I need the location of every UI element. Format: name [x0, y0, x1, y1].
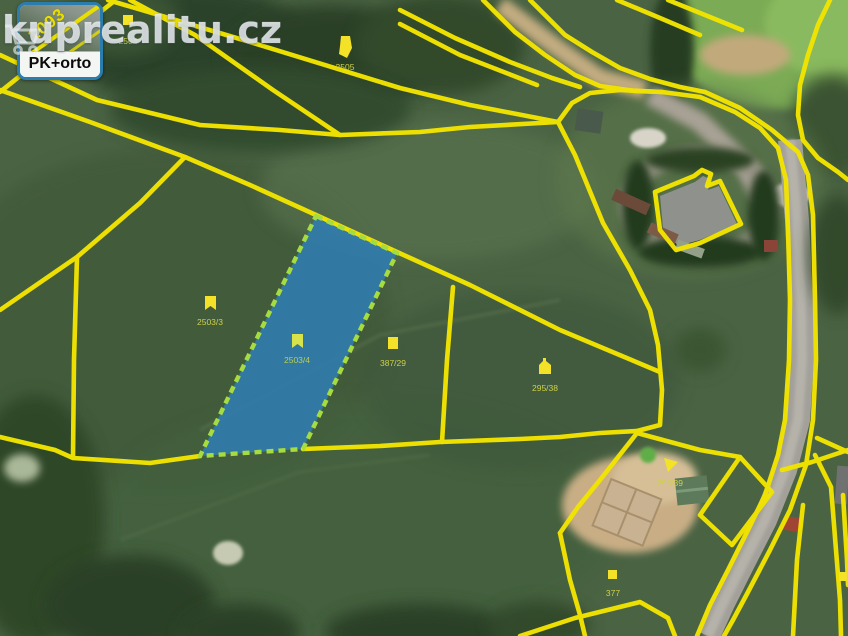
svg-text:2503/4: 2503/4	[284, 355, 310, 365]
svg-text:295/38: 295/38	[532, 383, 558, 393]
cadastral-map-viewer[interactable]: 2504 2505 2503/3 2503/4 387/29 295/38 29…	[0, 0, 848, 636]
parcel-marker-icon	[123, 15, 133, 25]
svg-text:295/39: 295/39	[657, 478, 683, 488]
parcel-marker	[839, 572, 847, 581]
svg-text:2504: 2504	[119, 36, 138, 46]
ortho-map-canvas[interactable]: 2504 2505 2503/3 2503/4 387/29 295/38 29…	[0, 0, 848, 636]
svg-text:2505: 2505	[336, 62, 355, 72]
parcel-marker-icon	[388, 337, 398, 349]
svg-text:377: 377	[606, 588, 620, 598]
parcel-marker-icon	[839, 572, 847, 581]
layer-button-label: PK+orto	[20, 51, 100, 77]
svg-text:2503/3: 2503/3	[197, 317, 223, 327]
svg-text:387/29: 387/29	[380, 358, 406, 368]
layer-switch-button[interactable]: 1093 PK+orto	[17, 2, 103, 80]
parcel-marker-icon	[608, 570, 617, 579]
